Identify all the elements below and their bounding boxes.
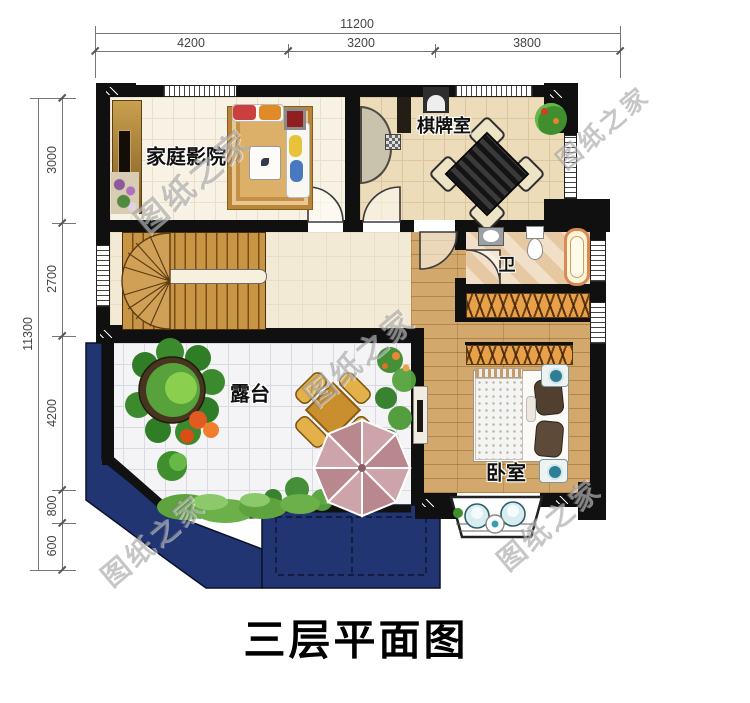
- wall-hatch: [422, 499, 434, 507]
- lamp: [547, 464, 563, 480]
- bathtub-inner: [570, 236, 584, 278]
- nightstand: [541, 364, 569, 387]
- side-table: [385, 134, 401, 150]
- dim-tick: [30, 570, 76, 571]
- watermark: 图纸之家: [92, 485, 213, 595]
- wardrobe-strip: [466, 345, 573, 365]
- wall-mid: [400, 220, 414, 232]
- bay-table: [486, 515, 504, 533]
- wall-closet: [455, 293, 466, 320]
- page-title: 三层平面图: [243, 607, 468, 668]
- dim-seg: 4200: [177, 36, 205, 50]
- dim-tick: [52, 490, 76, 491]
- wall-divider: [345, 97, 360, 222]
- sofa-cushion-yellow: [289, 135, 302, 157]
- wall-hatch: [550, 90, 562, 98]
- window-right-bedroom: [590, 302, 606, 344]
- sofa-cushion-blue: [290, 160, 303, 182]
- wall-mid: [455, 220, 578, 232]
- wall-right: [590, 232, 606, 240]
- pillow-small: [526, 396, 536, 422]
- closet-strip: [466, 293, 590, 318]
- wall-right: [590, 282, 606, 302]
- dim-tick: [30, 98, 76, 99]
- arch-niche-inner: [427, 95, 445, 111]
- dim-seg: 600: [45, 536, 59, 557]
- wall-hatch: [106, 87, 118, 95]
- dim-line: [95, 33, 620, 34]
- sofa-cushion-orange: [259, 105, 281, 120]
- plant-flower: [553, 118, 559, 124]
- room-label-chess: 棋牌室: [417, 112, 471, 138]
- dim-total-width: 11200: [340, 17, 374, 31]
- wall-wardrobe-top: [465, 342, 573, 345]
- dim-seg: 2700: [45, 265, 59, 293]
- dim-tick: [52, 223, 76, 224]
- wall-bath-bottom: [455, 284, 590, 293]
- wall-mid: [96, 220, 308, 232]
- dim-line: [38, 98, 39, 570]
- roof-dashed-line: [276, 517, 426, 575]
- room-label-terrace: 露台: [230, 378, 270, 407]
- dim-seg: 3800: [513, 36, 541, 50]
- cabinet: [397, 97, 411, 133]
- wall-closet-bottom: [455, 318, 590, 322]
- bay-chair: [465, 504, 489, 528]
- stair-railing: [155, 269, 267, 284]
- toilet: [527, 238, 543, 260]
- dim-seg: 3000: [45, 146, 59, 174]
- butterfly-decor: [261, 158, 269, 166]
- bed-runner: [475, 368, 523, 378]
- window-top-theater: [163, 85, 237, 97]
- dim-seg: 4200: [45, 399, 59, 427]
- sofa-cushion-red: [233, 105, 256, 120]
- room-label-bedroom: 卧室: [486, 457, 526, 486]
- roof-bottom-rect: [262, 505, 440, 588]
- wall-terrace-left: [102, 343, 114, 465]
- potted-plant: [535, 103, 567, 135]
- dim-seg: 800: [45, 496, 59, 517]
- dim-total-height: 11300: [21, 317, 35, 351]
- floor-plan-page: 11200 4200 3200 3800 11300 3000 2700 420…: [0, 0, 750, 703]
- flower-art: [284, 108, 306, 130]
- room-label-bathroom: 卫: [499, 251, 516, 276]
- plant-flower: [541, 108, 548, 115]
- nightstand: [539, 459, 568, 483]
- pillow: [533, 420, 564, 458]
- dim-tick: [95, 26, 96, 78]
- bedroom-tv: [417, 400, 423, 432]
- wall-bath-left: [455, 232, 466, 250]
- dim-tick: [52, 336, 76, 337]
- lamp: [548, 368, 564, 384]
- dim-seg: 3200: [347, 36, 375, 50]
- duvet: [475, 378, 523, 460]
- dim-line: [95, 51, 620, 52]
- dim-tick: [52, 523, 76, 524]
- window-left-stairs: [96, 245, 110, 307]
- sink-basin: [483, 230, 499, 242]
- dim-tick: [620, 26, 621, 78]
- wall-right: [590, 344, 606, 487]
- window-top-chess: [455, 85, 533, 97]
- window-right-bath: [590, 240, 606, 282]
- wall-hatch: [100, 330, 112, 338]
